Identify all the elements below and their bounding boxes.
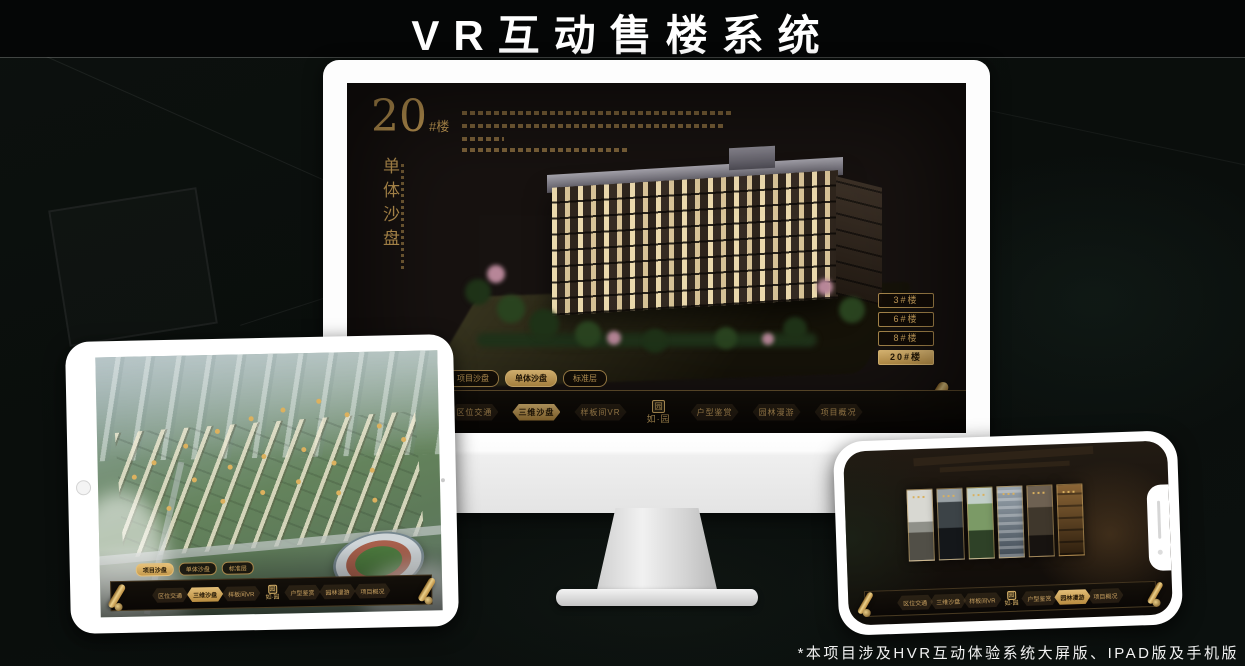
background-framed-sign	[48, 187, 218, 347]
nav-item-label: 园林漫游	[325, 590, 349, 597]
nav-item-label: 项目概况	[1093, 594, 1117, 601]
scroll-handle-icon[interactable]	[858, 591, 873, 615]
floor-selector: 3#楼 6#楼 8#楼 20#楼	[878, 293, 936, 369]
ipad-device: 项目沙盘 单体沙盘 标准层 区位交通 三维沙盘 样板间VR 园如·园 户型鉴赏 …	[65, 334, 459, 634]
camera-icon	[1158, 550, 1163, 555]
nav-item-label: 样板间VR	[580, 408, 620, 417]
model-blossom-tree	[487, 265, 505, 283]
nav-item-showroom-vr[interactable]: 样板间VR	[969, 595, 996, 605]
sandbox-mode-pills: 项目沙盘 单体沙盘 标准层	[447, 370, 607, 387]
gallery-panel-building-facade[interactable]	[996, 485, 1024, 558]
nav-item-label: 区位交通	[903, 600, 927, 607]
pill-label: 标准层	[573, 374, 597, 383]
nav-item-label: 户型鉴赏	[697, 408, 733, 417]
pill-label: 单体沙盘	[186, 567, 210, 574]
nav-item-garden-roam[interactable]: 园林漫游	[325, 587, 349, 597]
scroll-handle-icon[interactable]	[418, 576, 435, 602]
model-tree	[575, 321, 601, 347]
gallery-panel-garage[interactable]	[936, 488, 964, 561]
pill-single-sandbox[interactable]: 单体沙盘	[179, 562, 217, 576]
speaker-slot-icon	[1157, 501, 1161, 539]
footnote: *本项目涉及HVR互动体验系统大屏版、IPAD版及手机版	[798, 642, 1239, 663]
floor-button-6[interactable]: 6#楼	[878, 312, 934, 327]
nav-item-location[interactable]: 区位交通	[158, 590, 182, 600]
phone-vr-scene[interactable]: 区位交通 三维沙盘 样板间VR 园如·园 户型鉴赏 园林漫游 项目概况	[843, 440, 1173, 625]
model-blossom-tree	[607, 331, 621, 345]
nav-item-label: 三维沙盘	[518, 408, 554, 417]
model-tree	[643, 329, 667, 353]
model-tree	[497, 295, 525, 323]
nav-item-location[interactable]: 区位交通	[903, 597, 927, 607]
promo-canvas: VR互动售楼系统 20#楼 单体沙盘	[0, 0, 1245, 666]
nav-item-label: 三维沙盘	[936, 599, 960, 606]
title-divider	[0, 57, 1245, 58]
brand-logo-text: 如·园	[1005, 601, 1019, 607]
nav-item-label: 项目概况	[821, 408, 857, 417]
nav-item-unit-plans[interactable]: 户型鉴赏	[1027, 593, 1051, 603]
sandbox-mode-pills: 项目沙盘 单体沙盘 标准层	[136, 561, 254, 576]
scene-gallery	[906, 483, 1084, 561]
model-tree	[715, 327, 737, 349]
aerial-masterplan-view[interactable]: 项目沙盘 单体沙盘 标准层 区位交通 三维沙盘 样板间VR 园如·园 户型鉴赏 …	[95, 350, 442, 617]
model-front-facade	[552, 170, 838, 315]
model-tree	[839, 297, 865, 323]
nav-item-label: 项目概况	[360, 589, 384, 596]
nav-item-label: 区位交通	[158, 593, 182, 600]
pill-standard-floor[interactable]: 标准层	[563, 370, 607, 387]
pill-project-sandbox[interactable]: 项目沙盘	[136, 563, 174, 577]
nav-item-label: 户型鉴赏	[290, 590, 314, 597]
nav-item-3d-sandbox[interactable]: 三维沙盘	[193, 589, 217, 599]
model-tree	[465, 279, 491, 305]
floor-button-20[interactable]: 20#楼	[878, 350, 934, 365]
phone-notch	[1146, 484, 1171, 571]
model-blossom-tree	[817, 279, 833, 295]
monitor-stand-neck	[596, 508, 718, 594]
nav-item-garden-roam[interactable]: 园林漫游	[1060, 592, 1084, 602]
model-penthouse	[729, 146, 775, 170]
nav-item-3d-sandbox[interactable]: 三维沙盘	[936, 596, 960, 606]
scroll-handle-icon[interactable]	[108, 583, 125, 609]
floor-button-label: 20#楼	[890, 352, 922, 362]
model-tree	[783, 317, 807, 341]
nav-item-unit-plans[interactable]: 户型鉴赏	[697, 407, 733, 418]
pill-project-sandbox[interactable]: 项目沙盘	[447, 370, 499, 387]
nav-item-3d-sandbox[interactable]: 三维沙盘	[518, 407, 554, 418]
nav-item-label: 三维沙盘	[193, 592, 217, 599]
floor-button-3[interactable]: 3#楼	[878, 293, 934, 308]
seal-icon: 园	[652, 400, 665, 413]
nav-item-unit-plans[interactable]: 户型鉴赏	[290, 587, 314, 597]
floor-button-label: 6#楼	[893, 314, 918, 324]
floor-button-label: 8#楼	[893, 333, 918, 343]
gallery-panel-study-shelves[interactable]	[1056, 483, 1084, 556]
model-blossom-tree	[762, 333, 774, 345]
nav-item-project-overview[interactable]: 项目概况	[821, 407, 857, 418]
scroll-handle-icon[interactable]	[1148, 581, 1163, 605]
nav-item-location[interactable]: 区位交通	[456, 407, 492, 418]
nav-item-garden-roam[interactable]: 园林漫游	[759, 407, 795, 418]
nav-item-showroom-vr[interactable]: 样板间VR	[228, 589, 255, 599]
brand-logo-text: 如·园	[265, 595, 279, 601]
nav-item-label: 园林漫游	[759, 408, 795, 417]
brand-logo-text: 如·园	[647, 415, 671, 424]
nav-item-label: 样板间VR	[969, 598, 996, 605]
monitor-stand-foot	[556, 589, 758, 606]
pill-label: 标准层	[229, 566, 247, 572]
gallery-panel-interior-hall[interactable]	[906, 489, 934, 562]
home-button-icon	[76, 480, 91, 495]
nav-item-label: 区位交通	[456, 408, 492, 417]
pill-label: 项目沙盘	[143, 568, 167, 575]
camera-icon	[441, 478, 445, 482]
gallery-panel-courtyard[interactable]	[1026, 484, 1054, 557]
page-title: VR互动售楼系统	[0, 2, 1245, 63]
building-number-badges	[132, 475, 137, 480]
brand-logo: 园如·园	[647, 400, 671, 424]
pill-label: 单体沙盘	[515, 374, 547, 383]
brand-logo: 园如·园	[1004, 591, 1019, 607]
model-side-facade	[836, 176, 882, 305]
nav-item-showroom-vr[interactable]: 样板间VR	[580, 407, 620, 418]
scroll-cap	[114, 603, 122, 611]
floor-button-8[interactable]: 8#楼	[878, 331, 934, 346]
seal-icon: 园	[1007, 591, 1016, 600]
pill-single-sandbox[interactable]: 单体沙盘	[505, 370, 557, 387]
nav-item-label: 样板间VR	[228, 592, 254, 599]
nav-item-label: 园林漫游	[1060, 595, 1084, 602]
nav-item-project-overview[interactable]: 项目概况	[360, 586, 384, 596]
phone-device: 区位交通 三维沙盘 样板间VR 园如·园 户型鉴赏 园林漫游 项目概况	[833, 430, 1184, 636]
pill-standard-floor[interactable]: 标准层	[222, 561, 254, 575]
nav-item-label: 户型鉴赏	[1027, 596, 1051, 603]
gallery-panel-garden[interactable]	[966, 487, 994, 560]
floor-button-label: 3#楼	[893, 295, 918, 305]
seal-icon: 园	[268, 585, 277, 594]
nav-item-project-overview[interactable]: 项目概况	[1093, 591, 1117, 601]
pill-label: 项目沙盘	[457, 374, 489, 383]
brand-logo: 园如·园	[265, 585, 279, 601]
model-tree	[529, 309, 559, 339]
